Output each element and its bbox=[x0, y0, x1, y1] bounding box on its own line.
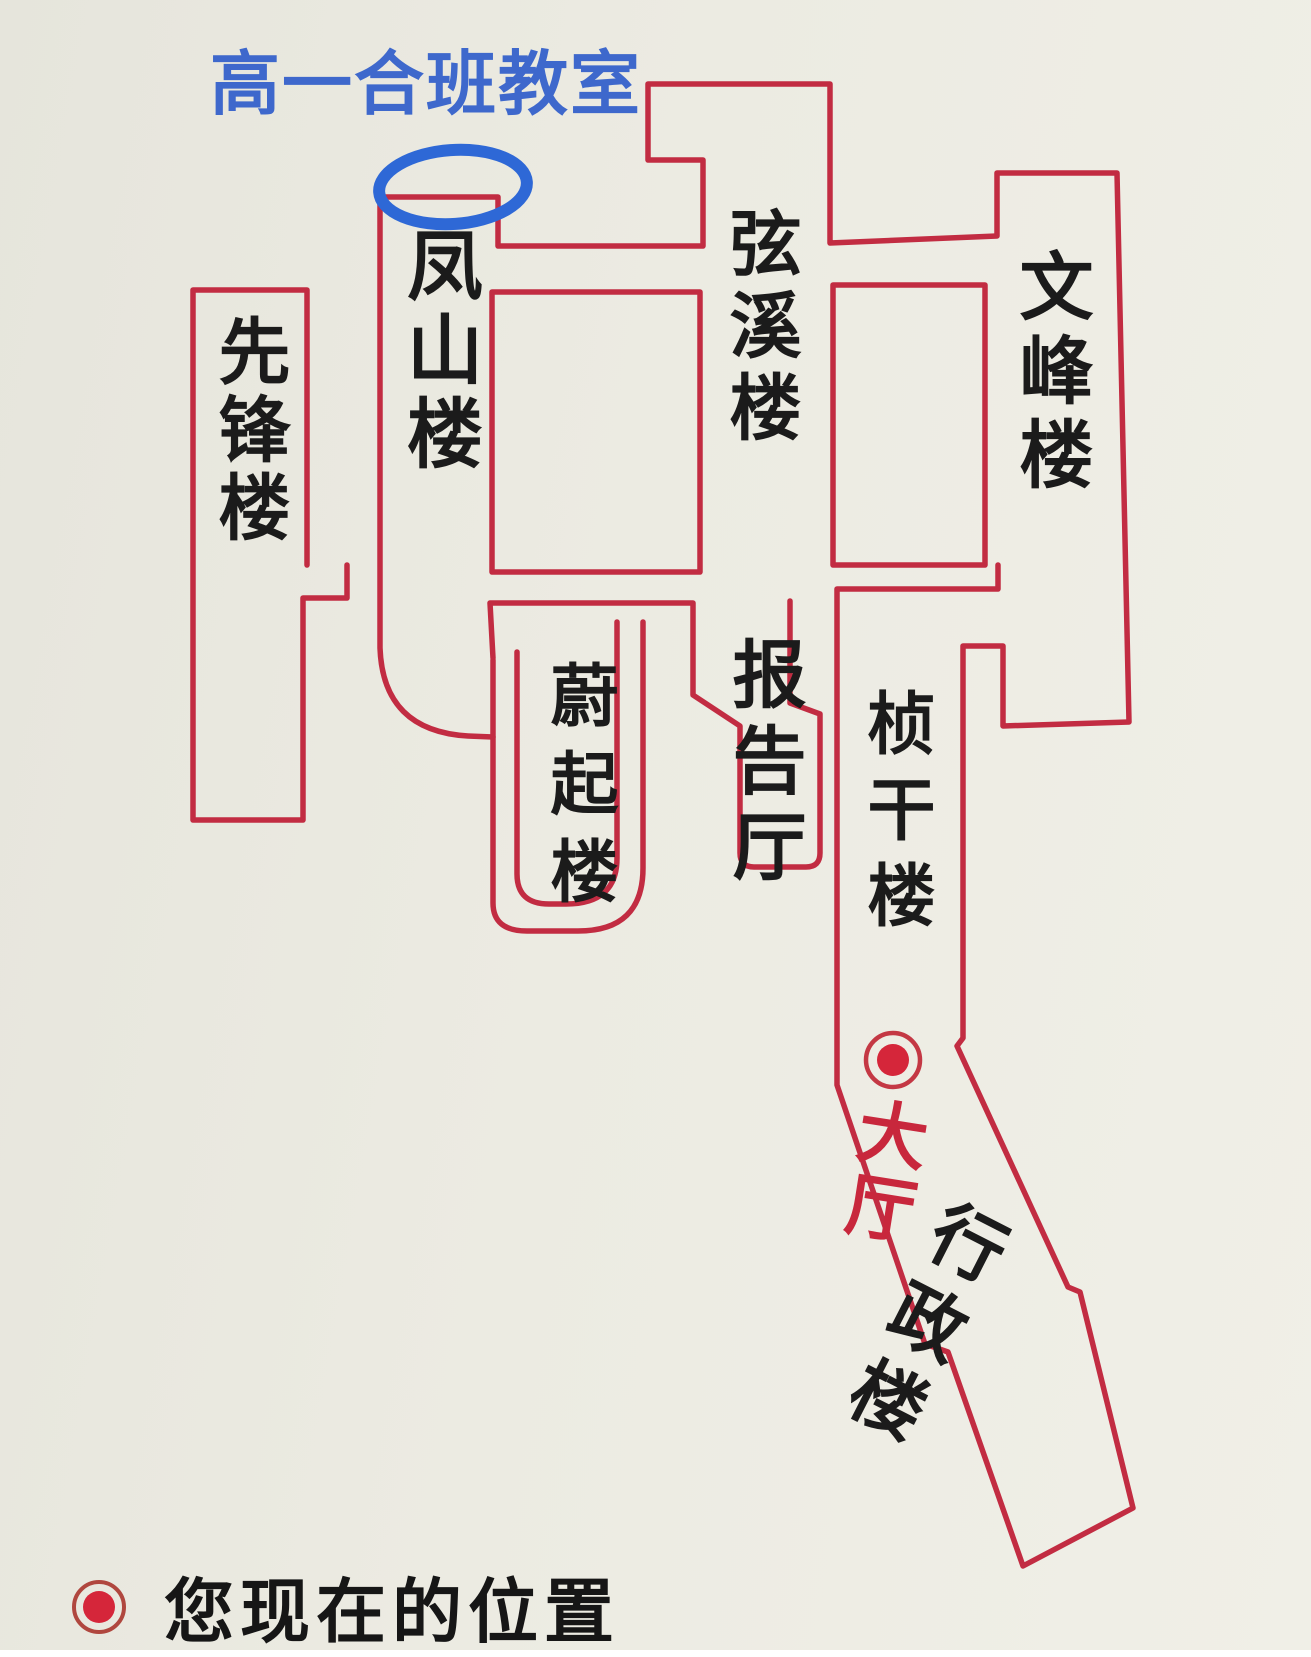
legend: 您现在的位置 bbox=[72, 1556, 620, 1657]
current-location-dot bbox=[83, 1591, 115, 1623]
legend-label: 您现在的位置 bbox=[164, 1556, 620, 1657]
building-label-fengshan: 凤山楼 bbox=[399, 226, 475, 478]
building-label-xianxi: 弦溪楼 bbox=[722, 206, 794, 452]
right-courtyard-outline bbox=[833, 285, 985, 565]
building-label-lecture-hall: 报告厅 bbox=[726, 636, 800, 894]
classroom-circle-annotation bbox=[377, 145, 530, 229]
campus-map: 高一合班教室 先锋楼 凤山楼 弦溪楼 文峰楼 蔚起楼 报告厅 桢干楼 大厅 行政… bbox=[0, 0, 1311, 1650]
left-courtyard-outline bbox=[492, 292, 700, 572]
current-location-legend-icon bbox=[72, 1580, 126, 1634]
building-label-wenfeng: 文峰楼 bbox=[1013, 248, 1087, 500]
map-outline-drawing bbox=[0, 0, 1311, 1650]
current-location-marker bbox=[866, 1033, 920, 1087]
building-label-zhengan: 桢干楼 bbox=[861, 688, 929, 946]
classroom-annotation-label: 高一合班教室 bbox=[210, 28, 642, 129]
building-label-weiqi: 蔚起楼 bbox=[544, 660, 612, 924]
building-label-xianfeng: 先锋楼 bbox=[211, 314, 283, 548]
